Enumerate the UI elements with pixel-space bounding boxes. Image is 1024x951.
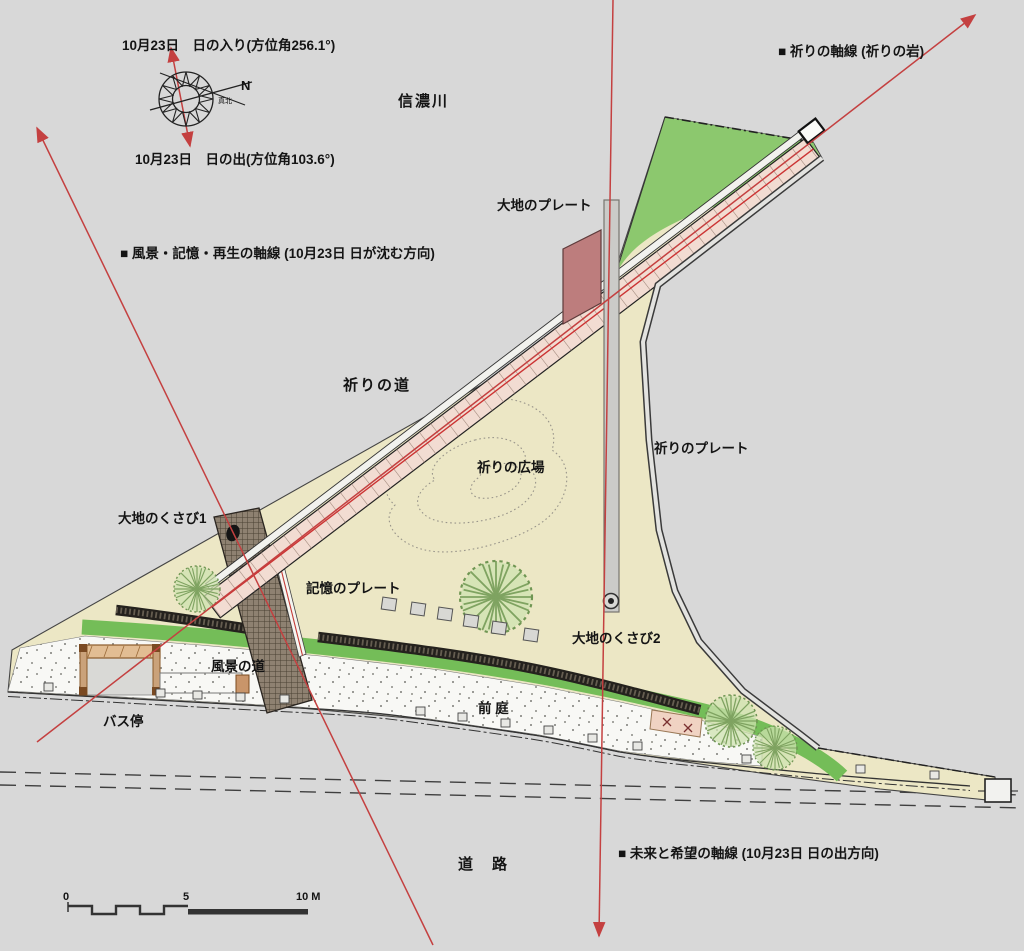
label-sunrise: 10月23日 日の出(方位角103.6°): [135, 151, 335, 167]
site-plan-drawing: 10月23日 日の入り(方位角256.1°) 10月23日 日の出(方位角103…: [0, 0, 1024, 951]
label-earth-wedge1: 大地のくさび1: [118, 510, 207, 526]
label-bus-stop: バス停: [103, 713, 144, 729]
label-landscape-path: 風景の道: [211, 658, 265, 674]
vertical-plate: [604, 200, 620, 612]
label-earth-plate: 大地のプレート: [497, 197, 592, 213]
bus-shelter-post: [236, 675, 249, 693]
label-future-axis: ■ 未来と希望の軸線 (10月23日 日の出方向): [618, 845, 879, 861]
label-sunset: 10月23日 日の入り(方位角256.1°): [122, 37, 335, 53]
label-prayer-plate: 祈りのプレート: [654, 440, 749, 456]
earth-wedge-2-dot: [608, 598, 614, 604]
label-prayer-axis: ■ 祈りの軸線 (祈りの岩): [778, 43, 924, 59]
label-earth-wedge2: 大地のくさび2: [572, 630, 661, 646]
scale-tick-10: 10 M: [296, 891, 320, 903]
site-plan-page: 10月23日 日の入り(方位角256.1°) 10月23日 日の出(方位角103…: [0, 0, 1024, 951]
tree-icon: [705, 695, 757, 747]
label-river: 信濃川: [398, 92, 449, 110]
label-prayer-path: 祈りの道: [343, 376, 411, 394]
label-road: 道 路: [458, 855, 509, 873]
label-landscape-axis: ■ 風景・記憶・再生の軸線 (10月23日 日が沈む方向): [120, 245, 435, 261]
label-true-north: 真北: [218, 96, 232, 105]
scale-tick-0: 0: [63, 891, 69, 903]
label-memory-plate: 記憶のプレート: [306, 580, 401, 596]
label-prayer-plaza: 祈りの広場: [477, 459, 545, 475]
scale-tick-5: 5: [183, 891, 189, 903]
tree-icon: [753, 726, 797, 770]
label-front-garden: 前 庭: [478, 700, 509, 716]
label-compass-n: N: [241, 78, 250, 93]
